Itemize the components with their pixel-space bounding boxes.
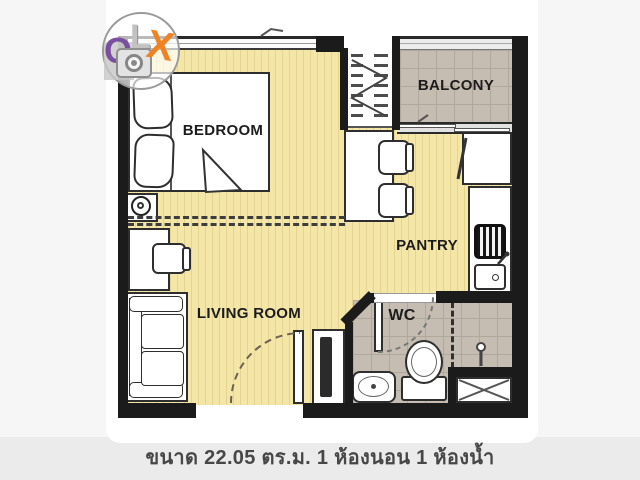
pillow-2 [133,133,175,188]
wash-basin-drain [371,384,376,389]
shower-partition [451,302,454,368]
wc-label: WC [380,307,424,325]
balcony-sliding-door [397,122,512,134]
desk-chair-backrest [182,247,191,271]
hanger-rail-left [351,54,363,122]
bedside-lamp-dot [137,202,144,209]
wall-shower-notch-h [448,367,512,377]
window-tick [261,29,283,36]
room-partition [128,216,345,226]
olx-watermark: O L X [99,10,183,90]
floor-plan: BEDROOM BALCONY PANTRY LIVING ROOM WC [0,0,640,480]
wardrobe [348,50,392,128]
refrigerator [462,132,512,185]
balcony-railing [400,36,512,50]
camera-lens-dot [131,60,137,66]
kitchen-sink [474,264,506,290]
wall-wc-top-right [436,291,512,303]
sliding-panel-1 [398,124,456,128]
hanger-rail-right [374,54,388,122]
wall-left [118,36,128,418]
entrance-door-leaf [293,330,304,404]
wall-right [512,36,528,418]
wall-shower-notch-v [448,367,456,403]
desk-chair [152,243,186,274]
pantry-label: PANTRY [388,237,466,254]
wall-wardrobe-left [340,48,348,130]
kitchen-sink-drain [492,274,499,281]
living-room-label: LIVING ROOM [190,305,308,322]
sofa-cushion-2 [141,351,184,386]
toilet-bowl-inner [411,347,437,377]
wall-wc-door-stub [368,293,374,303]
sliding-panel-2 [454,128,510,132]
bedroom-label: BEDROOM [174,122,272,139]
wall-wc-left [345,322,353,405]
wall-bottom-right [303,403,528,418]
dining-chair-2-backrest [405,186,414,215]
dining-chair-1-backrest [405,143,414,172]
wall-wardrobe-right [392,36,400,130]
sofa-armrest-top [129,296,183,312]
wc-door-opening [372,293,436,303]
tv-screen [320,337,332,397]
wall-bottom-left [118,403,196,418]
stove [474,224,506,259]
balcony-label: BALCONY [400,77,512,94]
floor-drain-box [456,377,512,403]
sofa-cushion-1 [141,314,184,349]
screenshot-root: { "watermark": { "brand": "OLX", "letter… [0,0,640,480]
